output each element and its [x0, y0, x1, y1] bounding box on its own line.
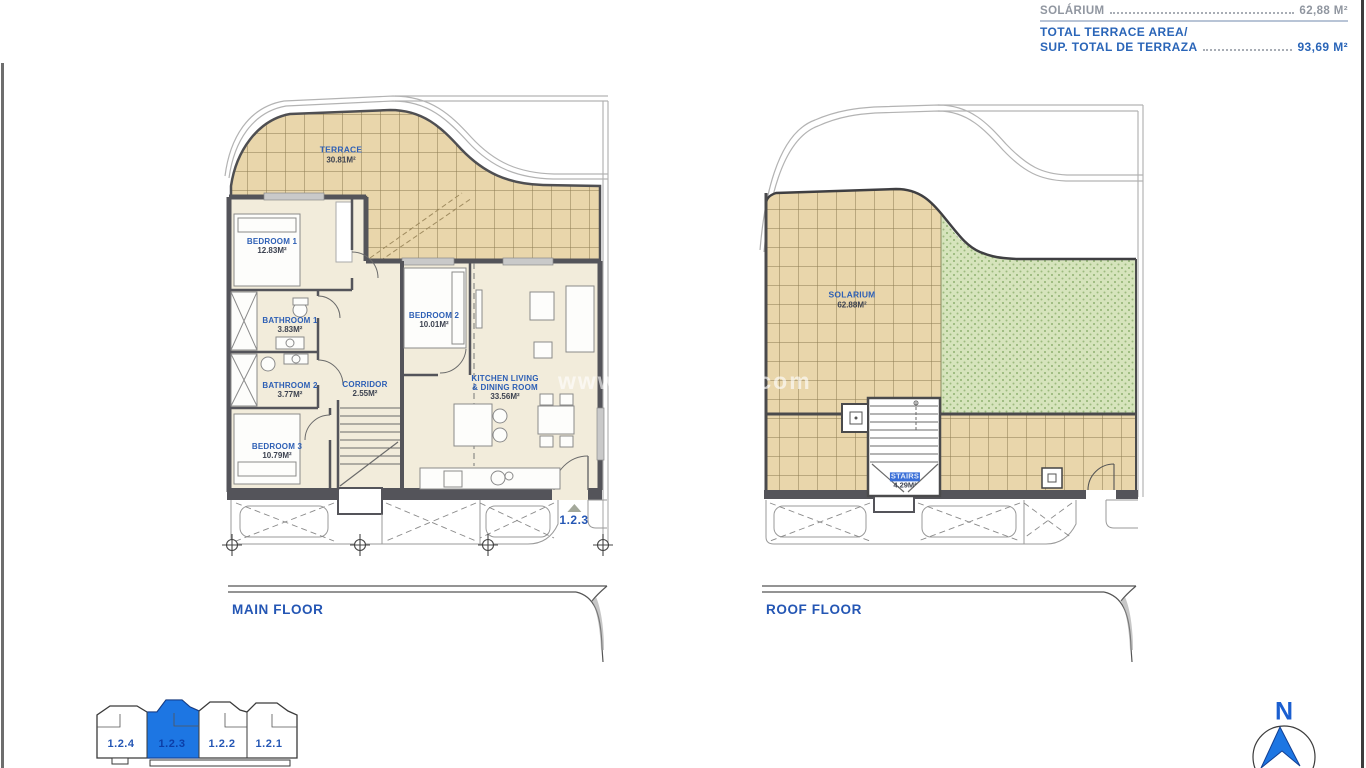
roof-floor-title: ROOF FLOOR — [766, 602, 862, 617]
total-terrace-row: SUP. TOTAL DE TERRAZA 93,69 M² — [1040, 40, 1348, 54]
room-label-terrace: TERRACE 30.81M² — [320, 146, 363, 165]
room-label-stairs: STAIRS 4.29M² — [890, 472, 920, 489]
room-label-bathroom1: BATHROOM 1 3.83M² — [262, 316, 317, 334]
room-label-solarium: SOLARIUM 62.88M² — [829, 291, 876, 310]
key-plan-unit-1-2-3: 1.2.3 — [159, 738, 186, 750]
key-plan-unit-1-2-1: 1.2.1 — [256, 738, 283, 750]
total-terrace-value: 93,69 M² — [1297, 40, 1348, 54]
room-label-bedroom2: BEDROOM 2 10.01M² — [409, 311, 459, 329]
unit-reference-marker: 1.2.3 — [559, 504, 588, 527]
room-label-bedroom3: BEDROOM 3 10.79M² — [252, 442, 302, 460]
area-summary-block: SOLÁRIUM SOLÁRIUM 62,88 M² TOTAL TERRACE… — [1040, 0, 1348, 54]
unit-marker-label: 1.2.3 — [559, 513, 588, 527]
key-plan-unit-1-2-4: 1.2.4 — [108, 738, 135, 750]
main-floor-title: MAIN FLOOR — [232, 602, 324, 617]
key-plan-unit-1-2-2: 1.2.2 — [209, 738, 236, 750]
solarium-value: 62,88 M² — [1299, 5, 1348, 17]
compass-north-label: N — [1275, 698, 1293, 727]
solarium-area-row: SOLÁRIUM 62,88 M² — [1040, 5, 1348, 17]
roof-floor-plan — [760, 105, 1143, 662]
dot-leader — [1203, 49, 1293, 51]
main-floor-plan — [222, 96, 613, 662]
unit-marker-triangle-icon — [567, 504, 581, 512]
watermark-right: .com — [750, 368, 812, 395]
compass-north-icon — [1253, 726, 1315, 768]
room-label-corridor: CORRIDOR 2.55M² — [342, 380, 387, 398]
solarium-label: SOLÁRIUM — [1040, 5, 1105, 17]
room-label-kitchen: KITCHEN LIVING & DINING ROOM 33.56M² — [469, 374, 541, 402]
key-plan — [97, 700, 297, 766]
total-terrace-label-es: SUP. TOTAL DE TERRAZA — [1040, 40, 1198, 54]
room-label-bedroom1: BEDROOM 1 12.83M² — [247, 237, 297, 255]
room-label-bathroom2: BATHROOM 2 3.77M² — [262, 381, 317, 399]
sheet-border-right — [1361, 0, 1364, 768]
dot-leader — [1110, 12, 1295, 14]
sheet-border-left — [1, 63, 4, 768]
total-terrace-label-en: TOTAL TERRACE AREA/ — [1040, 25, 1348, 39]
summary-divider — [1040, 20, 1348, 22]
watermark-left: www.v — [558, 368, 640, 395]
floor-plan-drawing — [0, 0, 1366, 768]
